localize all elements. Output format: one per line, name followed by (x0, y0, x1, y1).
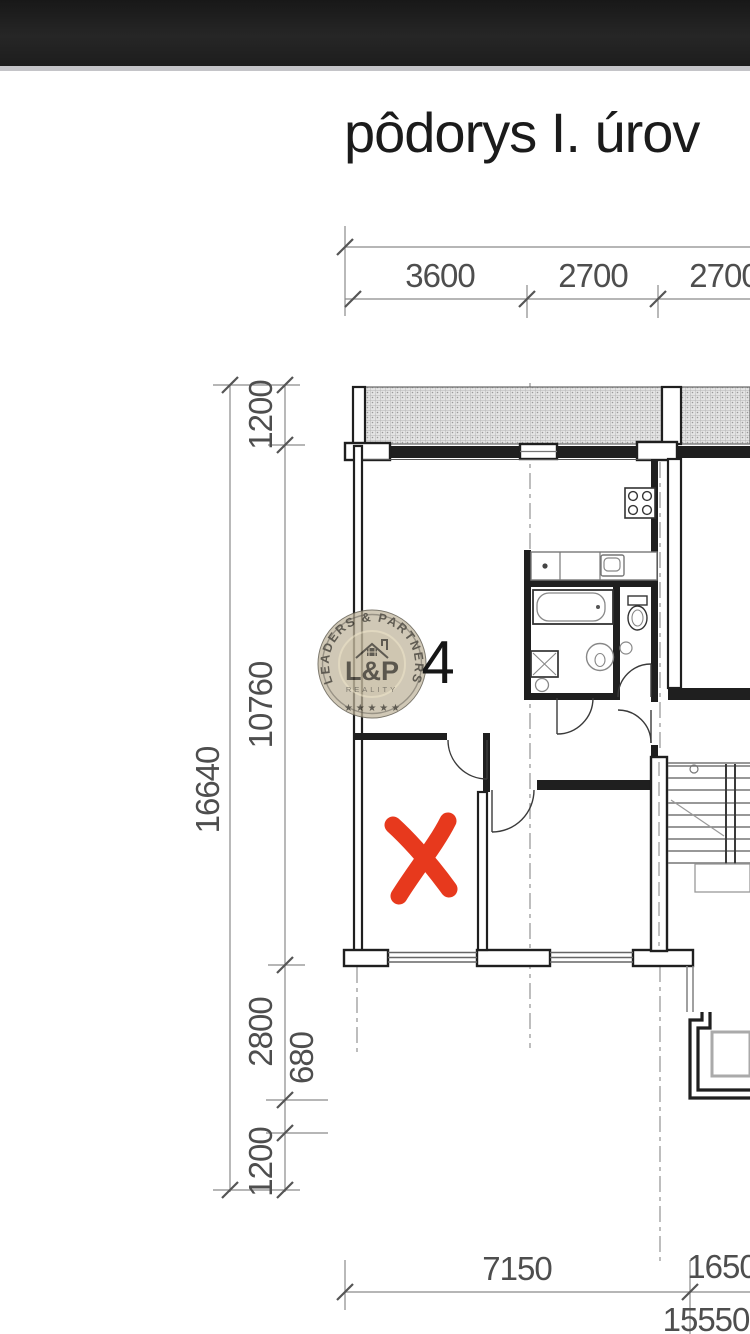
watermark-stars: ★ ★ ★ ★ ★ (344, 703, 400, 714)
door-arc-room2 (492, 790, 534, 832)
dim-left-680: 680 (283, 1031, 320, 1084)
balcony-left-pier (353, 387, 365, 444)
window-top-left (345, 443, 390, 460)
wall-xroom-right (478, 792, 487, 950)
watermark-monogram: L&P (345, 656, 399, 686)
room-number: 4 (421, 629, 454, 696)
watermark-subtitle: REALITY (346, 685, 398, 694)
dim-left-10760: 10760 (242, 661, 279, 748)
dim-bottom-overall: 15550 (663, 1301, 750, 1334)
dim-top-3600: 3600 (405, 257, 475, 294)
dim-top-2700b: 2700 (689, 257, 750, 294)
stair-direction-line (671, 800, 724, 836)
window-top-right (637, 442, 677, 460)
entry-shaft (690, 1012, 750, 1098)
dim-left-1200a: 1200 (242, 380, 279, 450)
balcony-divider-pier (662, 387, 681, 444)
dim-left-1200b: 1200 (242, 1127, 279, 1197)
pier-bottom-right (633, 950, 693, 966)
stair-landing (695, 864, 750, 892)
dim-bottom-7150: 7150 (482, 1250, 552, 1287)
dim-bottom-1650: 1650 (687, 1248, 750, 1285)
door-arc-xroom (448, 740, 487, 779)
dim-left-2800: 2800 (242, 997, 279, 1067)
screenshot-root: pôdorys I. úrov (0, 0, 750, 1334)
red-x-annotation (393, 821, 449, 896)
wall-neighbor-left (668, 459, 681, 688)
bathroom-fixtures (531, 590, 647, 692)
pier-bottom-left (344, 950, 388, 966)
dim-left-overall: 16640 (189, 746, 226, 833)
staircase (668, 763, 750, 892)
kitchen-fixtures (531, 488, 657, 580)
bathtub (533, 590, 613, 624)
walls (344, 442, 750, 1012)
pier-bottom-mid (477, 950, 550, 966)
door-arc-entry (618, 710, 651, 743)
door-arc-wc (618, 664, 651, 697)
toilet-tank (628, 596, 647, 605)
floor-plan-drawing: 3600 2700 2700 16640 1200 10760 2800 680… (0, 0, 750, 1334)
walls-interior (354, 459, 750, 792)
door-arc-bathroom (557, 698, 593, 734)
balcony (353, 387, 750, 444)
watermark-logo: LEADERS & PARTNERS L&P REALITY ★ ★ ★ ★ ★ (318, 610, 426, 718)
dim-top-2700a: 2700 (558, 257, 628, 294)
